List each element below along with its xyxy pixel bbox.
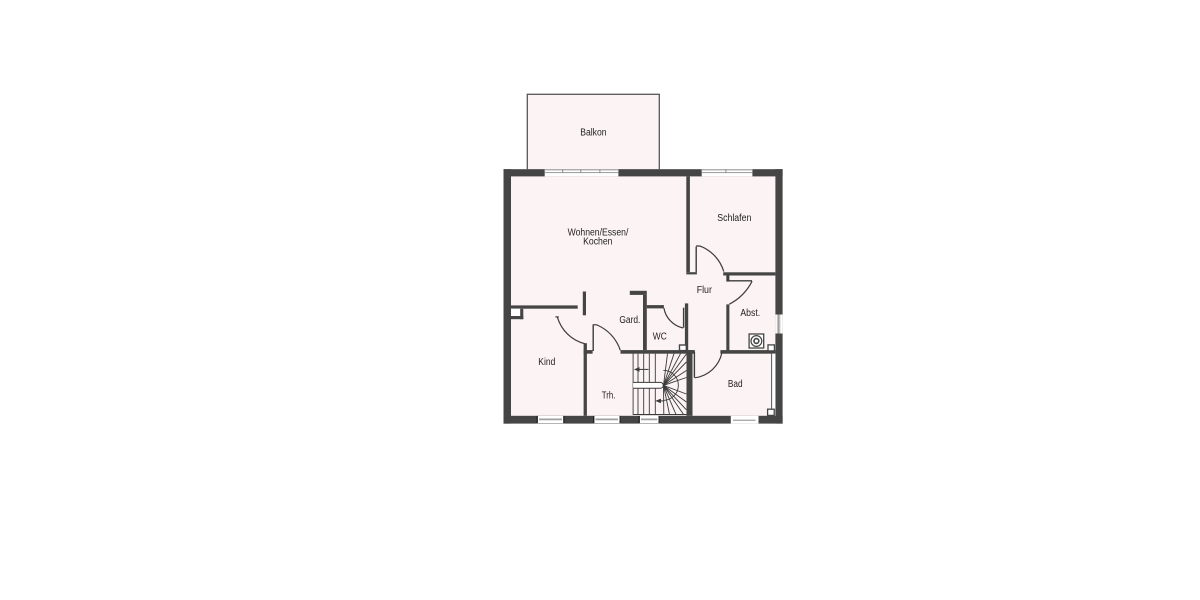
svg-text:Bad: Bad (728, 379, 743, 390)
svg-text:Abst.: Abst. (740, 308, 760, 319)
svg-text:Trh.: Trh. (602, 391, 616, 402)
svg-text:Balkon: Balkon (580, 128, 606, 139)
svg-text:WC: WC (653, 332, 667, 343)
svg-text:Gard.: Gard. (619, 315, 640, 326)
svg-text:Schlafen: Schlafen (717, 213, 751, 224)
svg-text:Kochen: Kochen (583, 237, 612, 248)
svg-text:Flur: Flur (697, 285, 713, 296)
svg-text:Kind: Kind (538, 357, 555, 368)
